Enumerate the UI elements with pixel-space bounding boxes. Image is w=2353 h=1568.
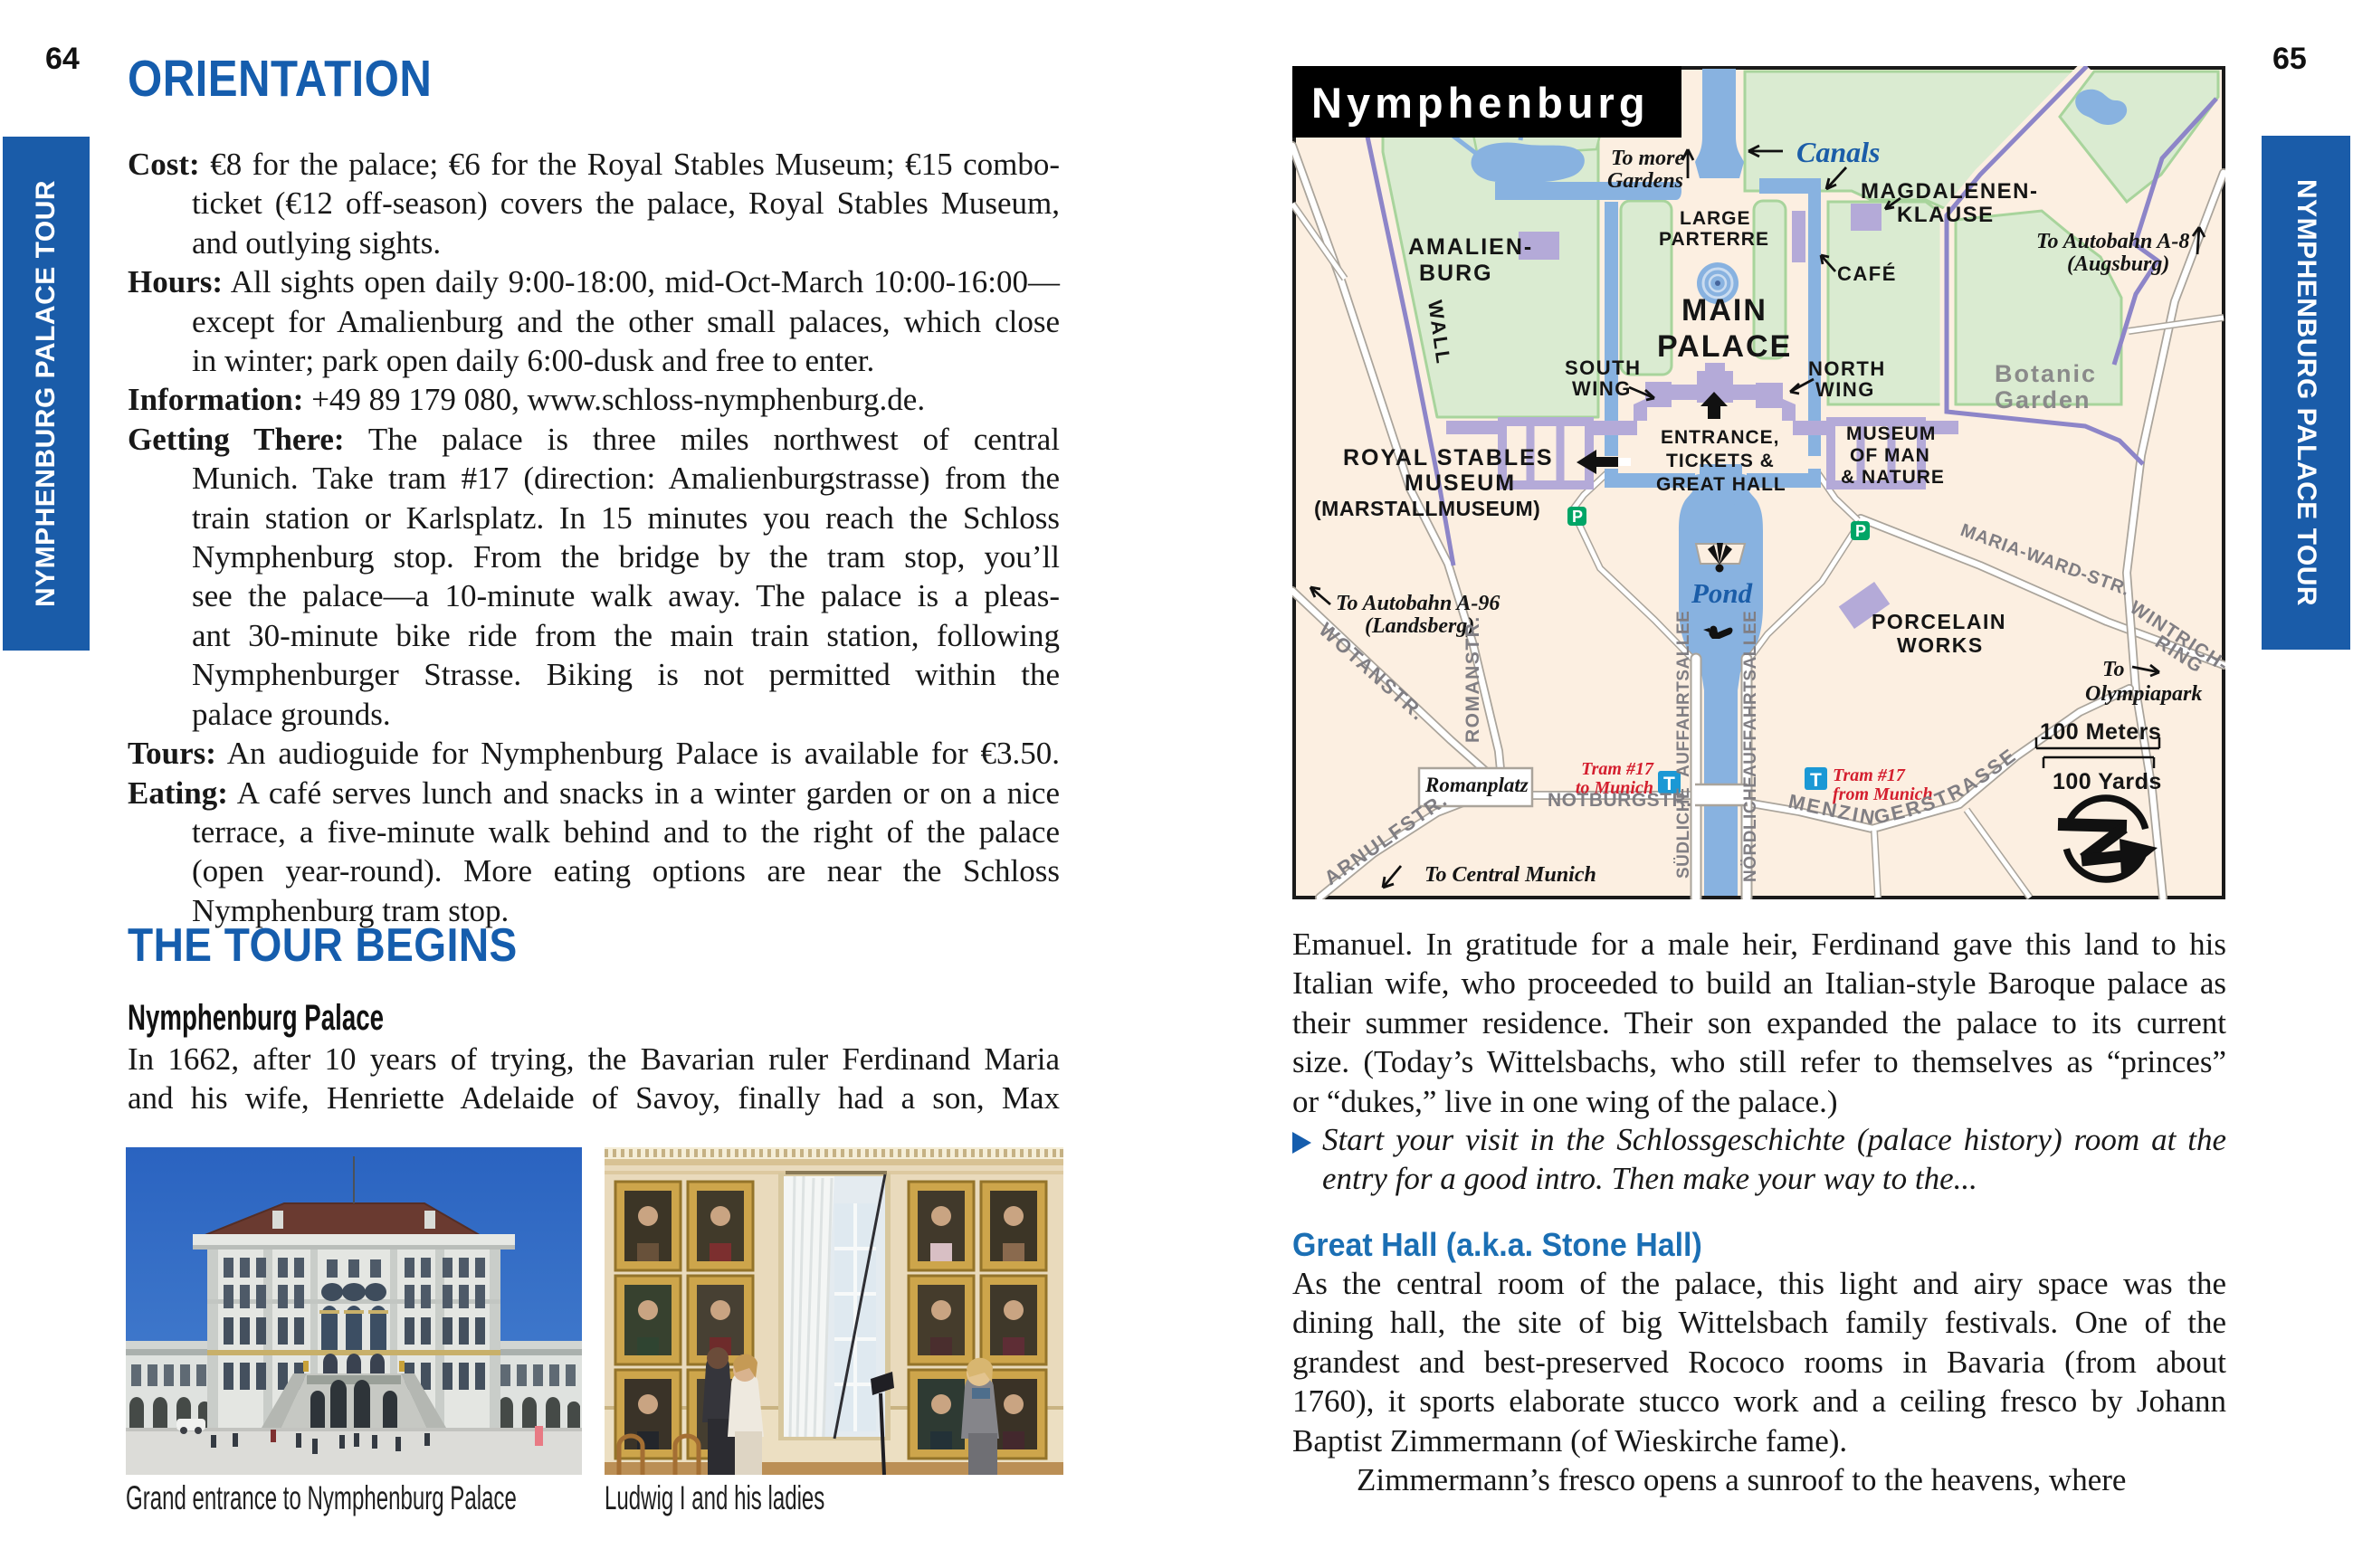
svg-text:100 Meters: 100 Meters bbox=[2040, 719, 2161, 745]
svg-text:Pond: Pond bbox=[1691, 577, 1753, 609]
svg-text:Canals: Canals bbox=[1796, 136, 1880, 168]
svg-text:Gardens: Gardens bbox=[1607, 169, 1683, 193]
svg-text:AUFFAHRTSALLEE: AUFFAHRTSALLEE bbox=[1741, 611, 1760, 777]
svg-text:GREAT HALL: GREAT HALL bbox=[1656, 474, 1786, 495]
svg-text:WING: WING bbox=[1572, 377, 1632, 400]
svg-text:(Landsberg): (Landsberg) bbox=[1365, 614, 1474, 638]
svg-text:MUSEUM: MUSEUM bbox=[1846, 423, 1936, 444]
svg-text:SOUTH: SOUTH bbox=[1565, 356, 1642, 379]
svg-text:WORKS: WORKS bbox=[1897, 633, 1984, 657]
svg-text:NÖRDLICHE: NÖRDLICHE bbox=[1741, 776, 1760, 882]
svg-text:To Autobahn A-8: To Autobahn A-8 bbox=[2036, 230, 2189, 253]
svg-text:SÜDLICHE: SÜDLICHE bbox=[1674, 787, 1693, 879]
svg-text:P: P bbox=[1572, 508, 1583, 526]
svg-text:T: T bbox=[1810, 770, 1822, 791]
svg-text:To Autobahn A-96: To Autobahn A-96 bbox=[1336, 592, 1500, 615]
svg-text:NORTH: NORTH bbox=[1808, 357, 1886, 380]
svg-text:AMALIEN-: AMALIEN- bbox=[1408, 234, 1533, 260]
svg-text:BURG: BURG bbox=[1419, 261, 1493, 286]
svg-text:KLAUSE: KLAUSE bbox=[1897, 203, 1995, 227]
svg-text:OF MAN: OF MAN bbox=[1850, 445, 1930, 466]
svg-text:(Augsburg): (Augsburg) bbox=[2067, 252, 2169, 276]
svg-text:Tram #17: Tram #17 bbox=[1581, 759, 1654, 779]
svg-text:PORCELAIN: PORCELAIN bbox=[1872, 610, 2006, 633]
svg-text:100 Yards: 100 Yards bbox=[2053, 769, 2162, 794]
svg-text:MAIN: MAIN bbox=[1681, 293, 1767, 328]
svg-text:To: To bbox=[2102, 658, 2124, 681]
svg-text:MAGDALENEN-: MAGDALENEN- bbox=[1861, 179, 2039, 204]
svg-text:PARTERRE: PARTERRE bbox=[1659, 229, 1769, 250]
svg-text:CAFÉ: CAFÉ bbox=[1837, 262, 1897, 285]
svg-text:ENTRANCE,: ENTRANCE, bbox=[1661, 427, 1780, 448]
svg-text:(MARSTALLMUSEUM): (MARSTALLMUSEUM) bbox=[1314, 497, 1540, 520]
svg-text:Olympiapark: Olympiapark bbox=[2085, 682, 2202, 706]
svg-text:MUSEUM: MUSEUM bbox=[1405, 470, 1516, 496]
svg-text:To more: To more bbox=[1611, 147, 1684, 170]
svg-text:P: P bbox=[1855, 522, 1866, 540]
svg-text:Tram #17: Tram #17 bbox=[1833, 765, 1906, 785]
svg-text:TICKETS &: TICKETS & bbox=[1666, 451, 1775, 471]
svg-text:ROMANSTR.: ROMANSTR. bbox=[1462, 615, 1483, 743]
svg-text:ROYAL STABLES: ROYAL STABLES bbox=[1343, 445, 1554, 470]
svg-text:WING: WING bbox=[1815, 378, 1875, 401]
svg-text:To Central Munich: To Central Munich bbox=[1424, 863, 1596, 887]
svg-text:Garden: Garden bbox=[1995, 386, 2091, 413]
svg-text:NOTBURGSTR.: NOTBURGSTR. bbox=[1548, 790, 1692, 811]
svg-text:AUFFAHRTSALLEE: AUFFAHRTSALLEE bbox=[1674, 611, 1693, 777]
svg-text:LARGE: LARGE bbox=[1680, 208, 1751, 229]
svg-text:PALACE: PALACE bbox=[1657, 329, 1792, 364]
svg-text:& NATURE: & NATURE bbox=[1841, 467, 1945, 488]
svg-text:Botanic: Botanic bbox=[1995, 360, 2097, 387]
svg-text:Nymphenburg: Nymphenburg bbox=[1311, 79, 1650, 127]
